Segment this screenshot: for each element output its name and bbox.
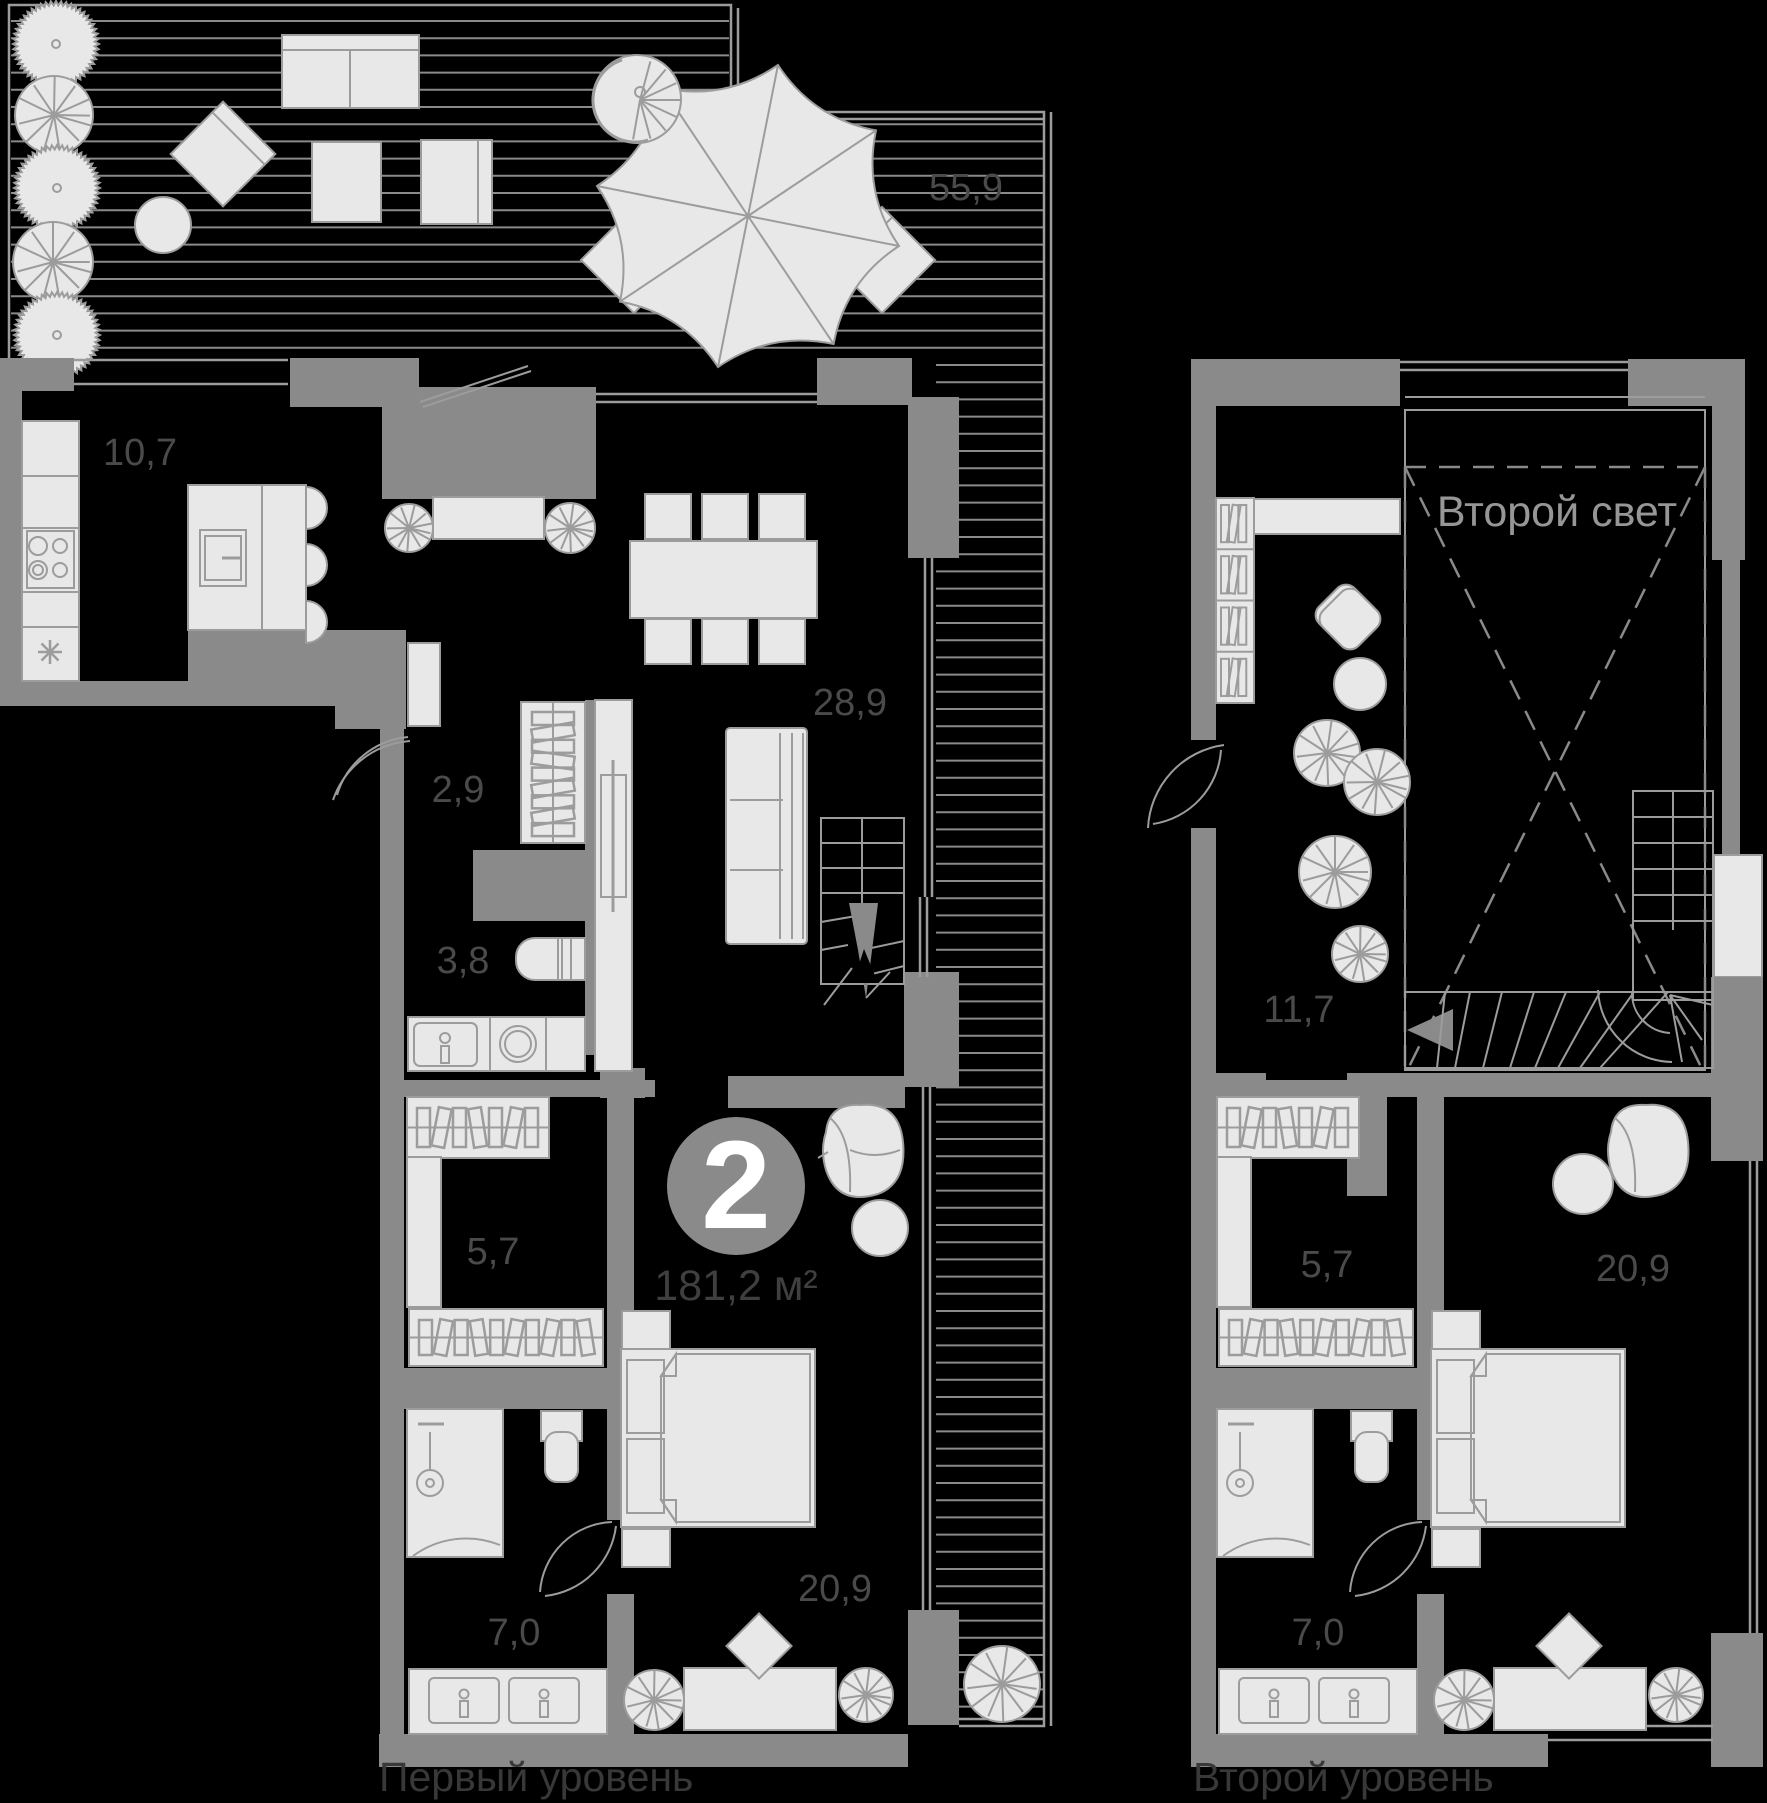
svg-text:181,2 м²: 181,2 м² <box>654 1262 817 1310</box>
svg-text:55,9: 55,9 <box>929 167 1003 209</box>
svg-text:Первый уровень: Первый уровень <box>379 1754 693 1800</box>
svg-text:28,9: 28,9 <box>813 682 887 724</box>
svg-text:20,9: 20,9 <box>1596 1248 1670 1290</box>
svg-text:7,0: 7,0 <box>488 1612 541 1654</box>
svg-text:5,7: 5,7 <box>1301 1244 1354 1286</box>
svg-text:20,9: 20,9 <box>798 1568 872 1610</box>
svg-text:Второй свет: Второй свет <box>1437 488 1677 536</box>
svg-text:7,0: 7,0 <box>1292 1612 1345 1654</box>
svg-text:11,7: 11,7 <box>1263 989 1334 1031</box>
svg-text:3,8: 3,8 <box>437 940 490 982</box>
svg-text:2,9: 2,9 <box>432 769 485 811</box>
svg-text:10,7: 10,7 <box>103 432 177 474</box>
svg-text:5,7: 5,7 <box>467 1231 520 1273</box>
svg-text:Второй уровень: Второй уровень <box>1193 1754 1494 1800</box>
svg-text:2: 2 <box>701 1116 771 1255</box>
